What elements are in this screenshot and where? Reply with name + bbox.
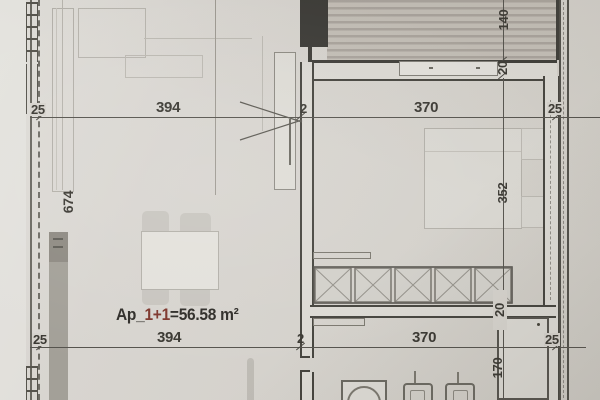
area-label-unit: 1+1 (144, 306, 169, 324)
shaft-mark (53, 246, 63, 248)
sliding-door-line (313, 318, 365, 326)
left-window-lower (26, 366, 38, 400)
window-mark (429, 67, 433, 69)
right-wall-axis-dash (563, 2, 564, 398)
kitchen-counter-outline (78, 8, 146, 58)
dim-label-wall-upper: 20 (496, 48, 510, 88)
shaft-wall-strip (49, 232, 68, 400)
floor-plan-canvas: 25 394 2 370 25 25 394 2 370 25 674 140 … (0, 0, 600, 400)
dim-label-wall-lower: 20 (493, 290, 507, 330)
dim-label-wall-right-top: 25 (547, 102, 563, 115)
column-wall-stub (308, 47, 312, 62)
dim-label-living-height: 674 (61, 182, 75, 222)
kitchen-island-line (215, 0, 216, 195)
counter-edge-line (144, 38, 252, 39)
window-mark (476, 67, 480, 69)
dining-table (141, 231, 219, 290)
balcony-window (399, 61, 498, 76)
right-exterior-wall-outer-line (567, 0, 569, 400)
dim-label-bedroom-depth: 352 (496, 173, 510, 213)
partition-wall-lower (300, 372, 314, 400)
dim-label-partition-top: 2 (299, 102, 308, 115)
dim-label-bath-depth: 170 (491, 348, 505, 388)
bedroom-window-dash (550, 100, 551, 300)
door-jamb (300, 356, 310, 358)
dim-label-bedroom-width-top: 370 (413, 100, 439, 115)
shelf-line (313, 252, 371, 259)
kitchen-unit-outline (125, 55, 203, 78)
sofa-inner-line (56, 8, 57, 190)
door-jamb (300, 370, 310, 372)
balcony-deck (327, 0, 559, 60)
structural-column (300, 0, 328, 47)
door-handle-dot (537, 323, 540, 326)
dim-label-living-width-top: 394 (155, 100, 181, 115)
toilet (403, 383, 433, 400)
dim-label-wall-right-bottom: 25 (544, 333, 560, 346)
toilet-pipe (414, 371, 416, 383)
leader-arrow (238, 96, 304, 146)
apartment-area-label: Ap_1+1=56.58 m² (116, 307, 239, 324)
radiator-stub (247, 358, 254, 400)
dim-label-partition-bottom: 2 (296, 332, 305, 345)
dim-label-wall-left-bottom: 25 (32, 333, 48, 346)
dimension-line-top (30, 117, 600, 118)
paper-margin (0, 0, 26, 400)
sink-pipe (457, 372, 459, 383)
bed-pillow-line (425, 151, 521, 152)
dim-label-balcony-depth: 140 (497, 0, 511, 40)
shaft-mark (53, 238, 63, 240)
dim-label-wall-left-top: 25 (30, 103, 46, 116)
left-window-upper (26, 2, 38, 62)
sink-basin (453, 390, 468, 400)
sink (445, 383, 475, 400)
wardrobe-row (313, 266, 513, 304)
area-label-prefix: Ap_ (116, 306, 144, 324)
dim-label-living-width-bottom: 394 (156, 330, 182, 345)
toilet-bowl (410, 390, 425, 400)
area-label-value: =56.58 m² (170, 306, 239, 324)
wall-face-line (62, 0, 63, 190)
dim-label-bedroom-width-bottom: 370 (411, 330, 437, 345)
